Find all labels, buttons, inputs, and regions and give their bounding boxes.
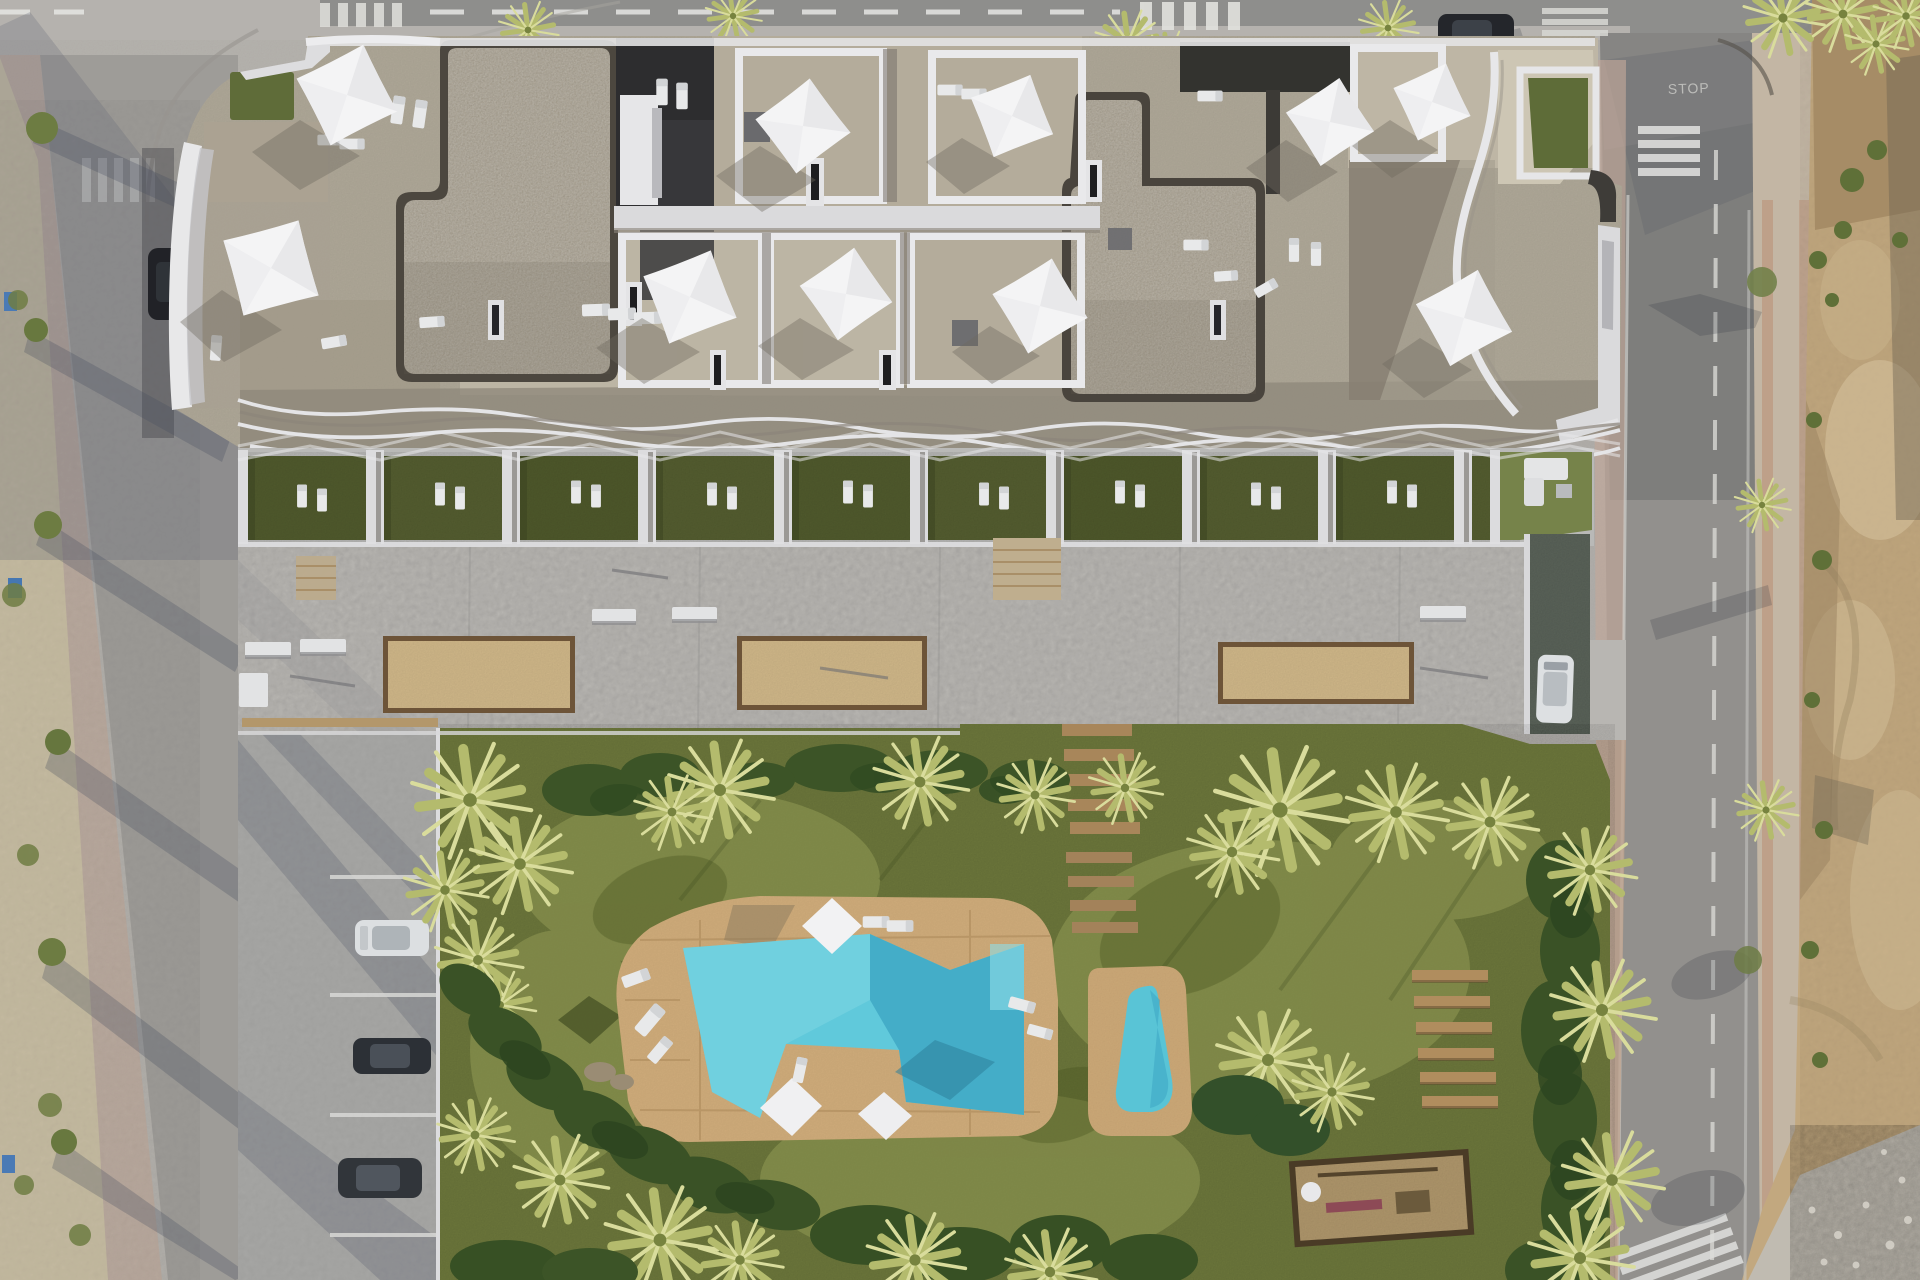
svg-text:STOP: STOP	[1668, 80, 1710, 97]
